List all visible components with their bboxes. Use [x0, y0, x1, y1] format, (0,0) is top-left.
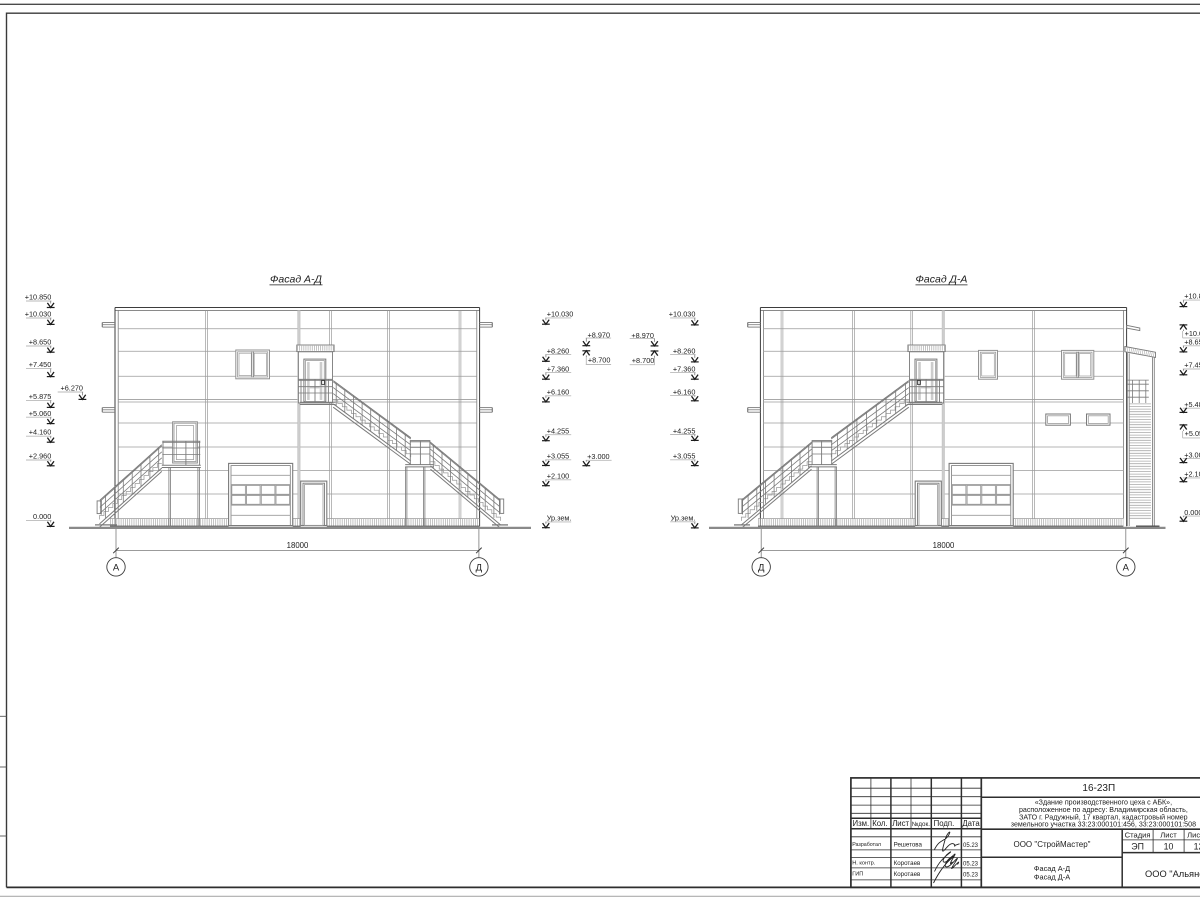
svg-text:А: А	[113, 562, 120, 573]
svg-text:Ур.зем.: Ур.зем.	[671, 514, 696, 523]
svg-text:ЭП: ЭП	[1131, 842, 1144, 852]
svg-text:А: А	[1123, 562, 1130, 573]
svg-text:земельного участка 33:23:00010: земельного участка 33:23:000101:456, 33:…	[1011, 821, 1196, 829]
svg-text:05.23: 05.23	[963, 862, 979, 868]
svg-text:+10.850: +10.850	[1184, 292, 1200, 301]
svg-text:Разработал: Разработал	[852, 842, 881, 848]
svg-text:18000: 18000	[287, 541, 309, 550]
svg-text:+3.000: +3.000	[587, 452, 610, 461]
svg-text:Стадия: Стадия	[1125, 831, 1151, 840]
svg-text:+5.050: +5.050	[1185, 429, 1200, 438]
svg-text:18000: 18000	[933, 541, 955, 550]
svg-text:+2.100: +2.100	[547, 471, 570, 480]
svg-text:+3.055: +3.055	[547, 452, 570, 461]
svg-text:+7.450: +7.450	[1184, 361, 1200, 370]
svg-text:ГИП: ГИП	[852, 872, 863, 878]
svg-text:+10.030: +10.030	[547, 310, 574, 319]
svg-text:0.000: 0.000	[33, 512, 51, 521]
svg-text:+7.360: +7.360	[673, 364, 696, 373]
svg-text:+6.160: +6.160	[547, 388, 570, 397]
svg-text:+4.160: +4.160	[29, 428, 52, 437]
svg-text:+5.485: +5.485	[1184, 400, 1200, 409]
svg-text:+4.255: +4.255	[547, 426, 570, 435]
svg-text:Лист: Лист	[1160, 831, 1177, 840]
svg-text:05.23: 05.23	[963, 843, 979, 849]
svg-text:Кол.: Кол.	[872, 819, 887, 828]
svg-text:12: 12	[1194, 842, 1200, 852]
svg-text:+7.450: +7.450	[29, 360, 52, 369]
svg-text:Дата: Дата	[962, 819, 980, 828]
svg-text:Д: Д	[476, 562, 483, 573]
svg-text:Лист: Лист	[892, 819, 909, 828]
svg-text:10: 10	[1164, 842, 1174, 852]
svg-text:+6.270: +6.270	[60, 384, 83, 393]
svg-text:ООО "СтройМастер": ООО "СтройМастер"	[1013, 840, 1090, 849]
svg-text:Фасад А-Д: Фасад А-Д	[270, 273, 322, 285]
svg-text:Ур.зем.: Ур.зем.	[547, 514, 572, 523]
svg-text:+10.850: +10.850	[25, 293, 52, 302]
svg-text:+8.260: +8.260	[547, 346, 570, 355]
svg-text:Фасад Д-А: Фасад Д-А	[916, 273, 968, 285]
svg-text:+2.960: +2.960	[29, 452, 52, 461]
svg-text:+5.875: +5.875	[29, 392, 52, 401]
svg-text:+8.700: +8.700	[588, 356, 611, 365]
svg-text:Фасад Д-А: Фасад Д-А	[1034, 872, 1070, 881]
svg-text:Д: Д	[758, 562, 765, 573]
svg-text:Листов: Листов	[1187, 831, 1200, 840]
svg-text:+8.650: +8.650	[29, 338, 52, 347]
svg-text:Подп.: Подп.	[934, 819, 955, 828]
svg-text:05.23: 05.23	[963, 872, 979, 878]
svg-text:№док.: №док.	[912, 821, 930, 828]
svg-text:Коротаев: Коротаев	[894, 871, 921, 878]
svg-text:+7.360: +7.360	[547, 364, 570, 373]
svg-text:ООО "Альянс": ООО "Альянс"	[1145, 869, 1200, 879]
svg-text:+3.055: +3.055	[673, 452, 696, 461]
svg-text:Коротаев: Коротаев	[894, 860, 921, 867]
svg-text:0.000: 0.000	[1184, 508, 1200, 517]
svg-text:+10.030: +10.030	[669, 310, 696, 319]
svg-text:+8.650: +8.650	[1184, 338, 1200, 347]
svg-text:Изм.: Изм.	[853, 819, 870, 828]
svg-text:Решетова: Решетова	[894, 841, 923, 848]
svg-text:Н. контр.: Н. контр.	[852, 861, 876, 867]
svg-text:+5.060: +5.060	[29, 409, 52, 418]
svg-text:+8.260: +8.260	[673, 346, 696, 355]
svg-text:+10.030: +10.030	[1185, 329, 1200, 338]
svg-text:+10.030: +10.030	[25, 310, 52, 319]
svg-text:+8.700: +8.700	[632, 356, 655, 365]
svg-text:16-23П: 16-23П	[1082, 783, 1115, 794]
